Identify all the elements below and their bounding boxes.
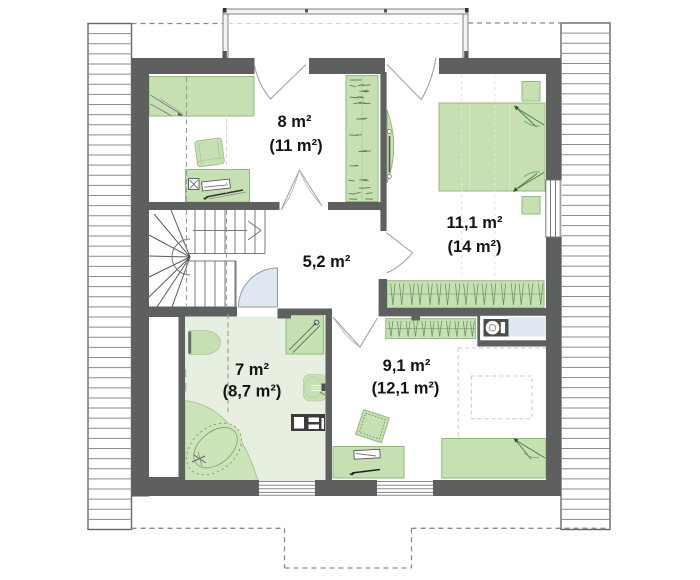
svg-text:(8,7 m²): (8,7 m²) [223,383,282,401]
svg-text:7 m²: 7 m² [235,361,269,379]
svg-text:(11 m²): (11 m²) [269,137,322,155]
svg-text:5,2 m²: 5,2 m² [303,253,351,271]
svg-text:8 m²: 8 m² [278,113,312,131]
svg-text:(14 m²): (14 m²) [447,238,501,256]
svg-text:9,1 m²: 9,1 m² [383,357,431,375]
svg-text:11,1 m²: 11,1 m² [447,214,503,232]
svg-text:(12,1 m²): (12,1 m²) [372,380,440,398]
